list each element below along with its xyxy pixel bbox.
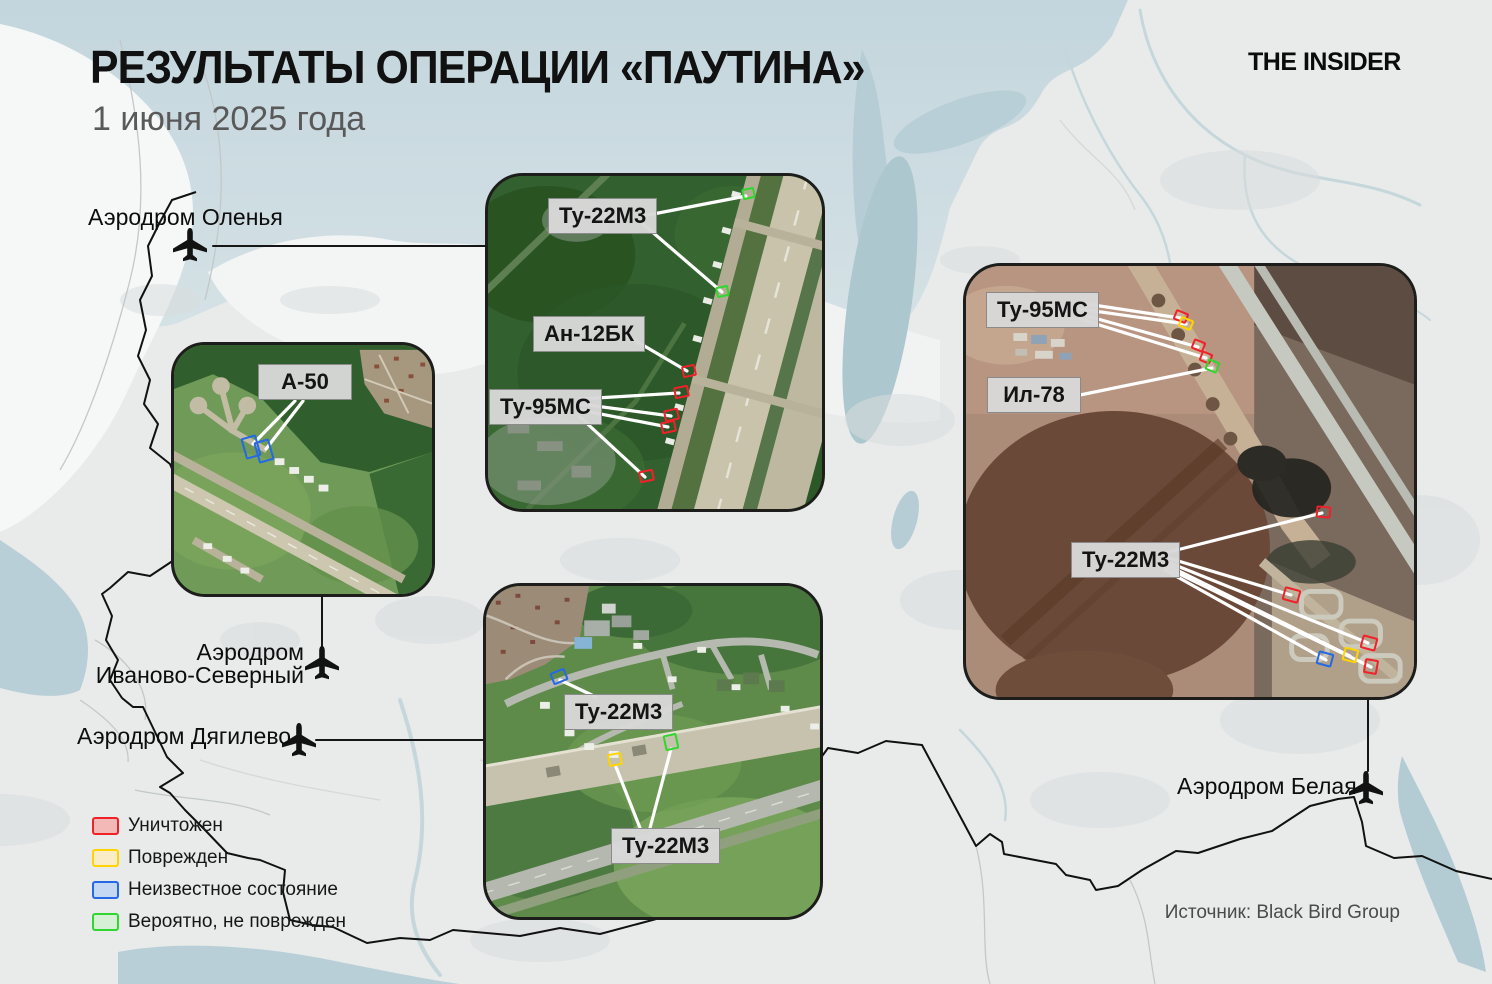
satellite-image-dyagilevo: [486, 586, 820, 917]
satellite-inset-dyagilevo: [483, 583, 823, 920]
legend-item-unknown: Неизвестное состояние: [92, 874, 346, 906]
page-subtitle: 1 июня 2025 года: [92, 100, 365, 139]
airfield-label-belaya: Аэродром Белая: [1177, 773, 1357, 800]
airfield-label-olenya: Аэродром Оленья: [88, 204, 283, 231]
airfield-label-ivanovo-line1: Аэродром: [96, 641, 304, 664]
legend-item-destroyed: Уничтожен: [92, 810, 346, 842]
satellite-image-belaya: [966, 266, 1414, 697]
airfield-label-ivanovo: Аэродром Иваново-Северный: [96, 641, 304, 687]
legend-label-unknown: Неизвестное состояние: [128, 879, 338, 901]
airfield-label-ivanovo-line2: Иваново-Северный: [96, 664, 304, 687]
airfield-label-dyagilevo: Аэродром Дягилево: [77, 723, 291, 750]
legend-swatch-unknown: [92, 881, 119, 899]
satellite-inset-olenya: [485, 173, 825, 512]
satellite-image-olenya: [488, 176, 822, 509]
legend-swatch-probably-intact: [92, 913, 119, 931]
legend-item-damaged: Поврежден: [92, 842, 346, 874]
satellite-image-ivanovo: [174, 345, 432, 594]
legend-swatch-damaged: [92, 849, 119, 867]
source-credit: Источник: Black Bird Group: [1165, 902, 1400, 924]
page-title: РЕЗУЛЬТАТЫ ОПЕРАЦИИ «ПАУТИНА»: [90, 40, 865, 94]
legend-label-probably-intact: Вероятно, не поврежден: [128, 911, 346, 933]
legend-label-damaged: Поврежден: [128, 847, 228, 869]
legend-swatch-destroyed: [92, 817, 119, 835]
satellite-inset-belaya: [963, 263, 1417, 700]
satellite-inset-ivanovo: [171, 342, 435, 597]
brand-logo: THE INSIDER: [1248, 48, 1401, 77]
legend-label-destroyed: Уничтожен: [128, 815, 223, 837]
infographic-canvas: Ту-22М3Ан-12БКТу-95МСТу-22М3Ту-22М3Ту-95…: [0, 0, 1492, 984]
legend-item-probably-intact: Вероятно, не поврежден: [92, 906, 346, 938]
legend: Уничтожен Поврежден Неизвестное состояни…: [92, 810, 346, 938]
